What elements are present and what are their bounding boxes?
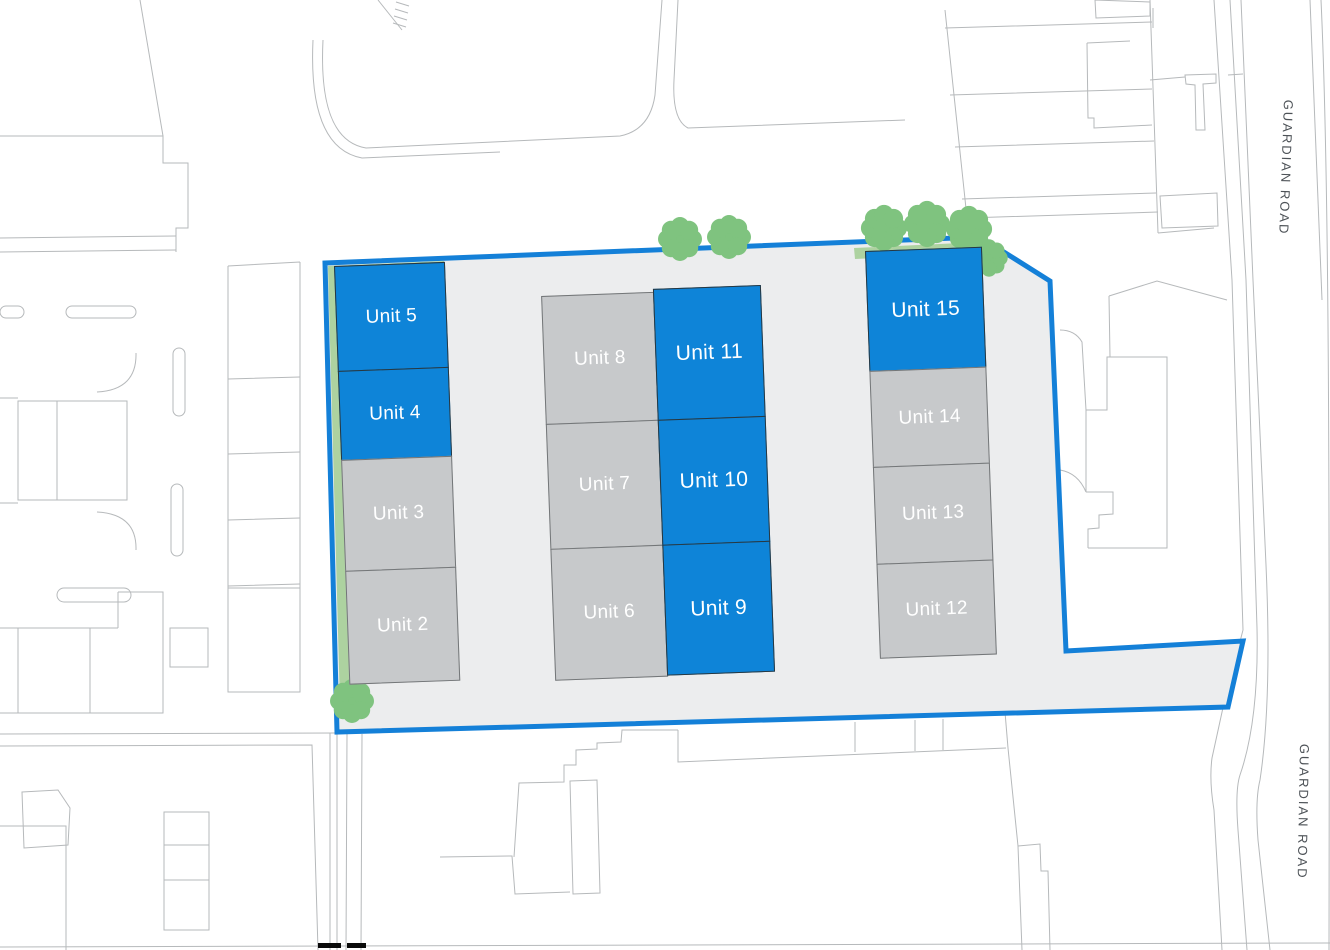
unit-2[interactable]: Unit 2 xyxy=(345,567,460,685)
road-label-guardian-road-south: GUARDIAN ROAD xyxy=(1295,744,1312,880)
unit-9[interactable]: Unit 9 xyxy=(662,541,775,676)
unit-3[interactable]: Unit 3 xyxy=(341,456,456,572)
tree-icon xyxy=(904,201,950,247)
unit-label: Unit 3 xyxy=(373,502,425,526)
tree-icon xyxy=(330,679,374,723)
site-boundary xyxy=(325,237,1243,732)
unit-label: Unit 2 xyxy=(377,614,429,638)
unit-6[interactable]: Unit 6 xyxy=(550,545,668,681)
unit-14[interactable]: Unit 14 xyxy=(869,367,989,468)
unit-label: Unit 15 xyxy=(891,296,960,322)
unit-4[interactable]: Unit 4 xyxy=(338,367,452,461)
unit-block-east: Unit 15 Unit 14 Unit 13 Unit 12 xyxy=(865,247,997,659)
unit-label: Unit 12 xyxy=(905,597,968,621)
site-plan-canvas: Unit 5 Unit 4 Unit 3 Unit 2 Unit 8 Unit … xyxy=(0,0,1330,950)
unit-7[interactable]: Unit 7 xyxy=(546,420,664,550)
unit-block-central-west: Unit 8 Unit 7 Unit 6 xyxy=(541,292,668,681)
unit-label: Unit 9 xyxy=(690,595,748,621)
unit-label: Unit 6 xyxy=(583,601,635,625)
unit-label: Unit 7 xyxy=(578,473,630,497)
unit-label: Unit 4 xyxy=(369,402,421,426)
unit-10[interactable]: Unit 10 xyxy=(658,416,771,546)
unit-8[interactable]: Unit 8 xyxy=(541,292,659,425)
unit-block-west: Unit 5 Unit 4 Unit 3 Unit 2 xyxy=(334,262,460,685)
unit-13[interactable]: Unit 13 xyxy=(873,463,994,565)
unit-label: Unit 5 xyxy=(365,305,417,329)
unit-label: Unit 8 xyxy=(574,346,626,370)
unit-label: Unit 11 xyxy=(675,340,743,366)
tree-icon xyxy=(861,205,907,251)
unit-block-central-east: Unit 11 Unit 10 Unit 9 xyxy=(653,285,775,677)
unit-label: Unit 14 xyxy=(898,405,961,429)
tree-icon xyxy=(707,215,751,259)
unit-label: Unit 10 xyxy=(679,468,748,494)
unit-12[interactable]: Unit 12 xyxy=(876,560,996,659)
unit-5[interactable]: Unit 5 xyxy=(334,262,449,372)
tree-icon xyxy=(658,217,702,261)
unit-label: Unit 13 xyxy=(902,502,965,526)
unit-11[interactable]: Unit 11 xyxy=(653,285,766,421)
unit-15[interactable]: Unit 15 xyxy=(865,247,986,372)
unit-block-central: Unit 8 Unit 7 Unit 6 Unit 11 Unit 10 Uni… xyxy=(541,285,775,681)
